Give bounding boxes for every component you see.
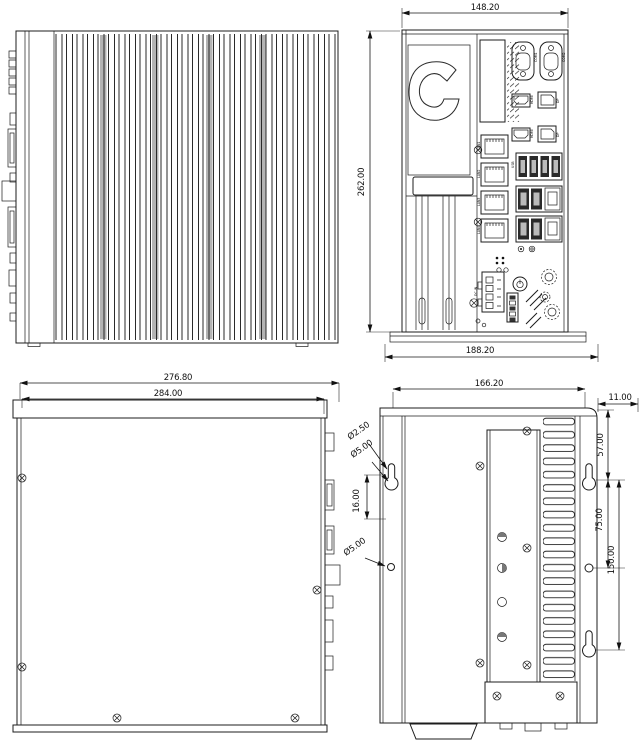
- lan-port-3: LAN3: [477, 191, 508, 214]
- usb-quad-port: USB: [511, 153, 562, 180]
- plate-holes: [498, 533, 507, 642]
- lan-port-1: LAN1: [477, 135, 508, 158]
- power-button: [513, 277, 527, 291]
- lan4-label: LAN4: [477, 226, 481, 234]
- dim-front-height-label: 262.00: [357, 168, 367, 197]
- heatsink-fins-top: [54, 34, 336, 340]
- com1-label: COM1: [534, 52, 538, 62]
- com-port-2: COM2: [540, 42, 566, 80]
- dim-front-width: 148.20: [402, 3, 568, 28]
- com2-label: COM2: [562, 52, 566, 62]
- side-view-drawing: 276.80 284.00: [0, 368, 345, 747]
- dp2-label: DP: [556, 133, 560, 137]
- dp1-label: DP: [556, 99, 560, 103]
- dim-top-to-keyhole-label: 57.00: [596, 433, 606, 456]
- expansion-slot-covers: [416, 196, 455, 330]
- lan2-label: LAN2: [477, 170, 481, 178]
- heatsink-fins-rear: [543, 415, 575, 681]
- dim-keyhole-dia: Ø5.00: [348, 437, 388, 481]
- dp-port-2: DP: [538, 126, 560, 142]
- terminal-block: [480, 40, 520, 122]
- dp-port-1: DP: [538, 92, 560, 108]
- top-view-drawing: [0, 25, 345, 355]
- usb-label: USB: [511, 161, 515, 168]
- rear-plate: [476, 427, 540, 682]
- dim-rear-width: 166.20: [393, 379, 585, 408]
- dim-front-depth-label: 188.20: [466, 346, 495, 356]
- led-indicators: [496, 246, 535, 272]
- dim-fin-depth-label: 11.00: [608, 393, 631, 403]
- dim-hole-dia-label: Ø5.00: [341, 535, 367, 558]
- antenna-connectors: [526, 270, 560, 329]
- hdmi-port-2: HDMI: [512, 128, 534, 141]
- dim-keyhole-span: 150.00: [607, 480, 619, 650]
- technical-drawing-page: 148.20 262.00 188.20: [0, 0, 643, 747]
- pin-header-strip: [507, 293, 518, 322]
- dim-front-height: 262.00: [357, 31, 400, 332]
- dc-in-terminal: DC-IN: [474, 272, 504, 312]
- dim-fin-depth: 11.00: [598, 393, 638, 412]
- handle-bracket: [406, 177, 477, 196]
- front-view-drawing: 148.20 262.00 188.20: [350, 0, 643, 370]
- dim-keyhole-slot-length: 16.00: [352, 475, 386, 519]
- dim-rear-width-label: 166.20: [475, 379, 504, 389]
- hdmi1-label: HDMI: [530, 95, 534, 104]
- chassis-feet-top: [28, 343, 308, 347]
- vent-grille: [408, 45, 470, 175]
- rear-edge-connector-bumps: [325, 433, 340, 670]
- rear-view-drawing: 166.20 11.00: [340, 368, 643, 747]
- side-panel-screws: [18, 474, 321, 722]
- logo-mark: [409, 62, 459, 120]
- usb-lan-combo-2: [516, 216, 562, 242]
- rear-bottom-block: [410, 682, 577, 739]
- dim-keyhole-span-label: 150.00: [607, 546, 617, 575]
- dim-side-body-label: 284.00: [154, 389, 183, 399]
- front-edge-connector-bumps: [2, 51, 16, 321]
- hdmi2-label: HDMI: [530, 129, 534, 138]
- dim-side-overall-label: 276.80: [164, 373, 193, 383]
- dim-slot-length-label: 16.00: [352, 489, 362, 512]
- dc-in-label: DC-IN: [474, 286, 478, 296]
- lan3-label: LAN3: [477, 198, 481, 206]
- dim-front-depth: 188.20: [385, 344, 598, 362]
- lan-port-2: LAN2: [477, 163, 508, 186]
- chassis-outline-side: [13, 400, 327, 732]
- dim-front-width-label: 148.20: [471, 3, 500, 13]
- usb-lan-combo-1: [516, 186, 562, 212]
- dim-keyhole-to-hole-label: 75.00: [595, 508, 605, 531]
- dim-hole-dia: Ø5.00: [341, 535, 385, 566]
- dim-side-body: 284.00: [22, 389, 324, 414]
